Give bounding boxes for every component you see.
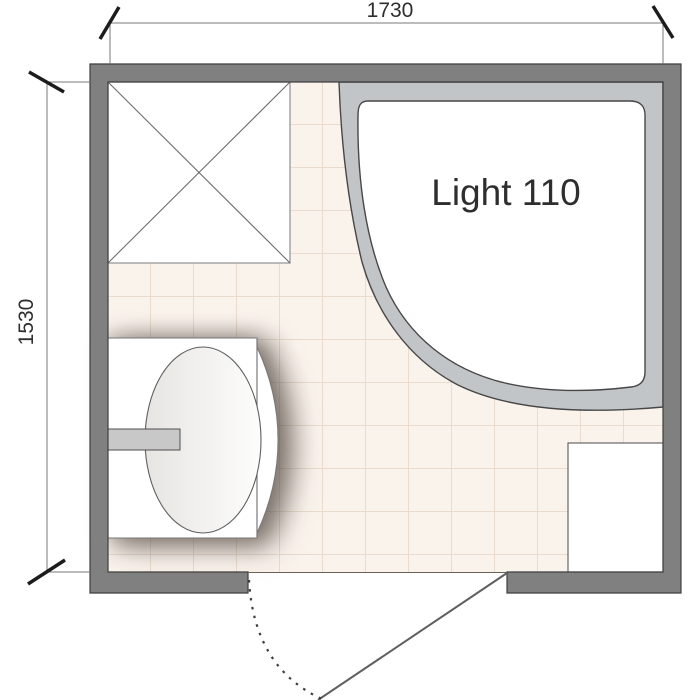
bathtub-label: Light 110: [431, 172, 581, 213]
floor-plan-canvas: Light 110 1730 1530: [0, 0, 700, 700]
door-swing-arc: [249, 580, 322, 699]
dimension-height-label: 1530: [15, 299, 38, 346]
shower-tray-placeholder: [108, 82, 290, 263]
door-leaf: [318, 573, 507, 700]
dimension-height: 1530: [15, 72, 90, 584]
faucet: [108, 429, 180, 450]
door: [249, 573, 507, 700]
washbasin: [108, 338, 278, 538]
floor-plan: Light 110 1730 1530: [0, 0, 700, 700]
dimension-width-label: 1730: [367, 0, 414, 22]
dimension-width: 1730: [100, 0, 673, 64]
storage-niche: [568, 443, 663, 572]
